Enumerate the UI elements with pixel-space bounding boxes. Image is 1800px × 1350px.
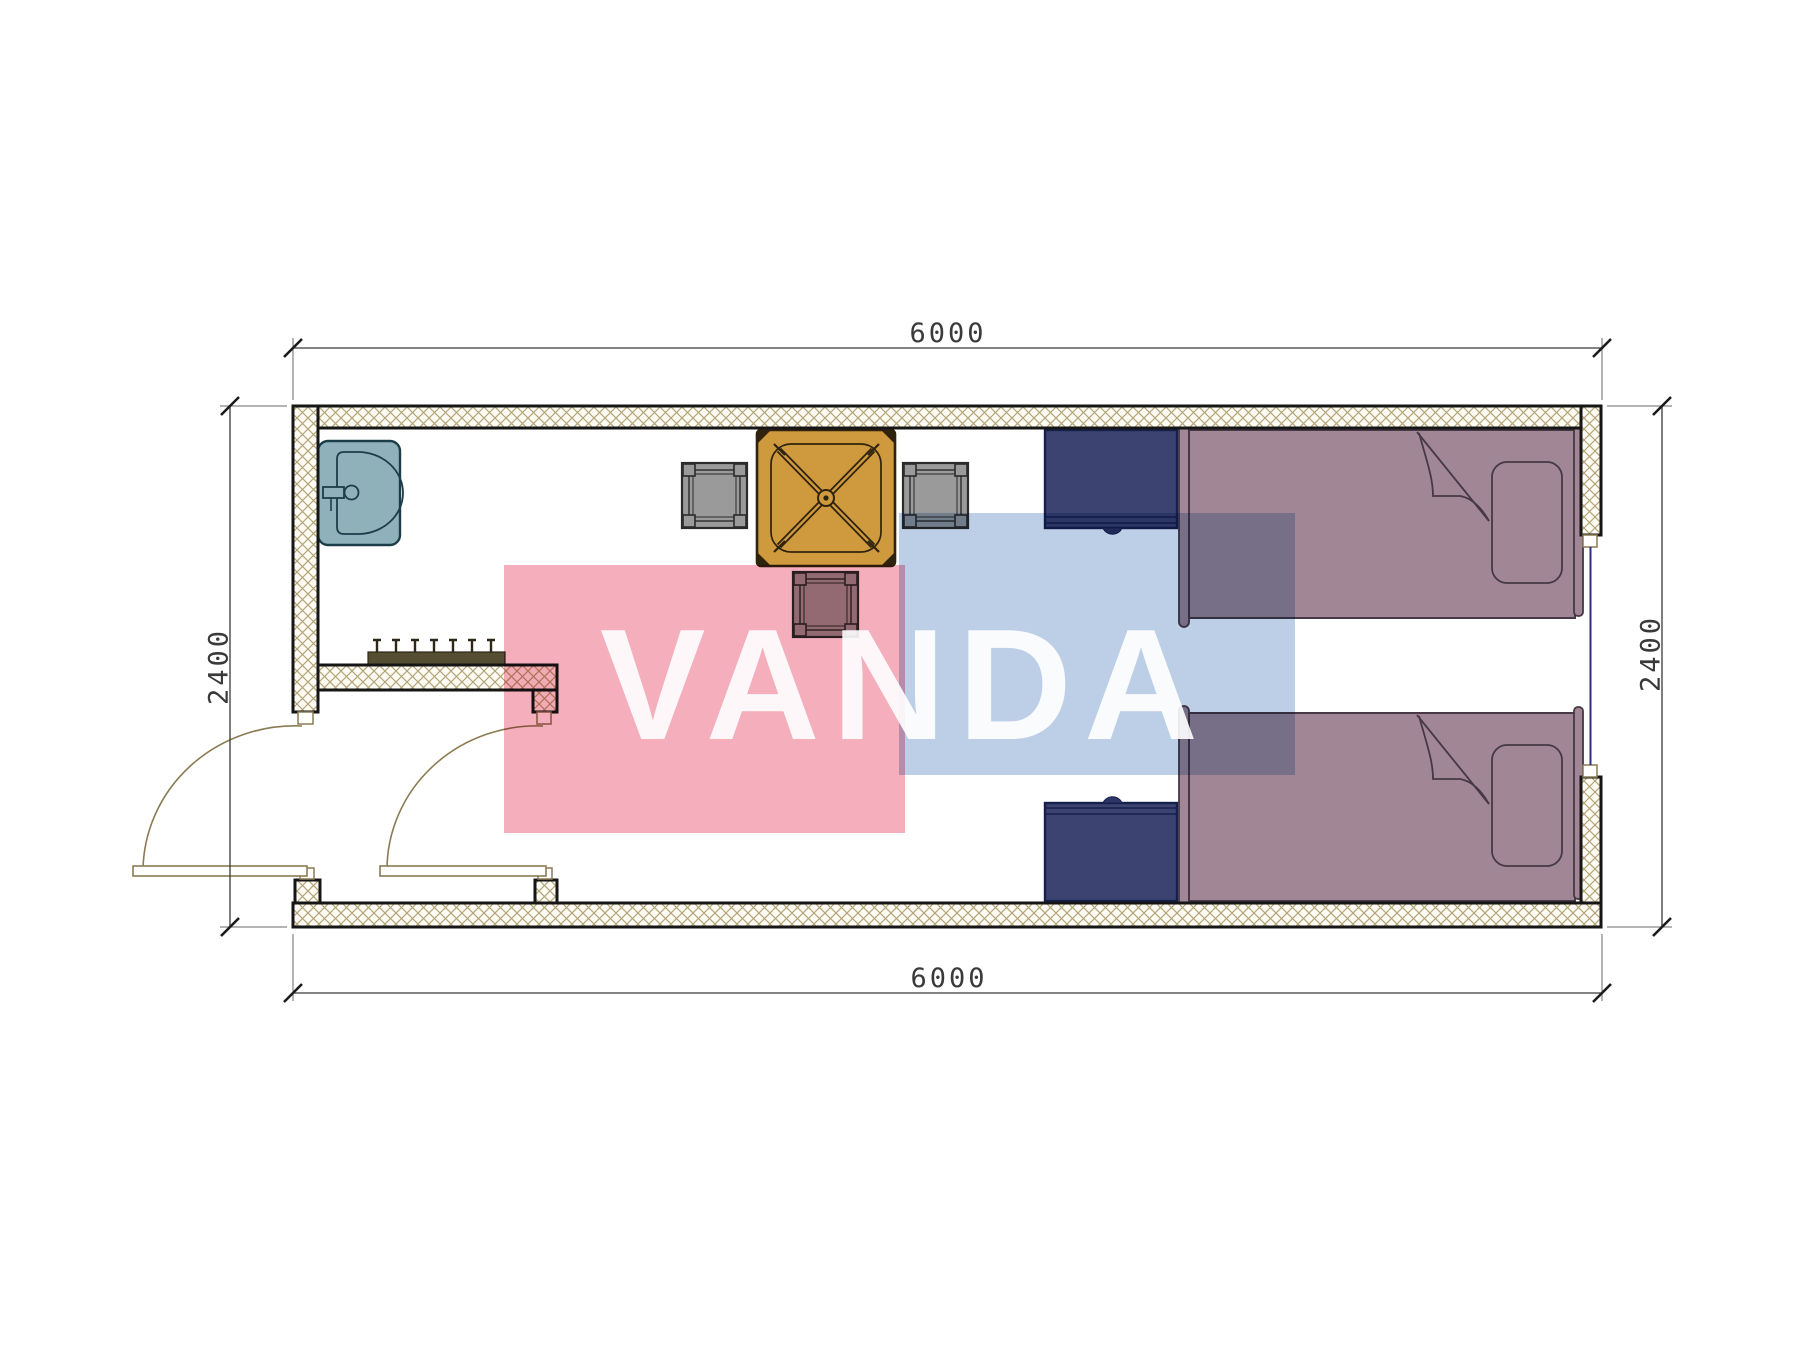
window-jamb-bottom	[1583, 765, 1597, 777]
wall-top	[293, 406, 1601, 428]
watermark-text: VANDA	[540, 603, 1270, 768]
coat-rack	[368, 640, 505, 665]
door-swing-arc	[143, 726, 302, 870]
wall-corner-block	[295, 880, 320, 903]
dim-label-left: 2400	[204, 612, 235, 722]
sink	[318, 441, 403, 545]
wall-right-upper	[1581, 406, 1601, 535]
wall-bottom	[293, 903, 1601, 927]
window-jamb-top	[1583, 535, 1597, 547]
dining-table	[757, 430, 895, 566]
door-leaf	[133, 866, 307, 876]
dim-label-top: 6000	[893, 318, 1003, 349]
door-jamb-block	[535, 880, 557, 903]
entry-door	[133, 726, 307, 876]
coat-hooks	[373, 640, 495, 652]
sink-faucet	[323, 487, 344, 498]
wall-left	[293, 406, 318, 712]
chair-left	[682, 463, 747, 528]
nightstand-bottom	[1045, 797, 1177, 901]
door-leaf	[380, 866, 546, 876]
dim-label-right: 2400	[1636, 599, 1667, 709]
floor-plan-canvas: 6000 6000 2400 2400 VANDA	[0, 0, 1800, 1350]
dim-label-bottom: 6000	[894, 963, 1004, 994]
